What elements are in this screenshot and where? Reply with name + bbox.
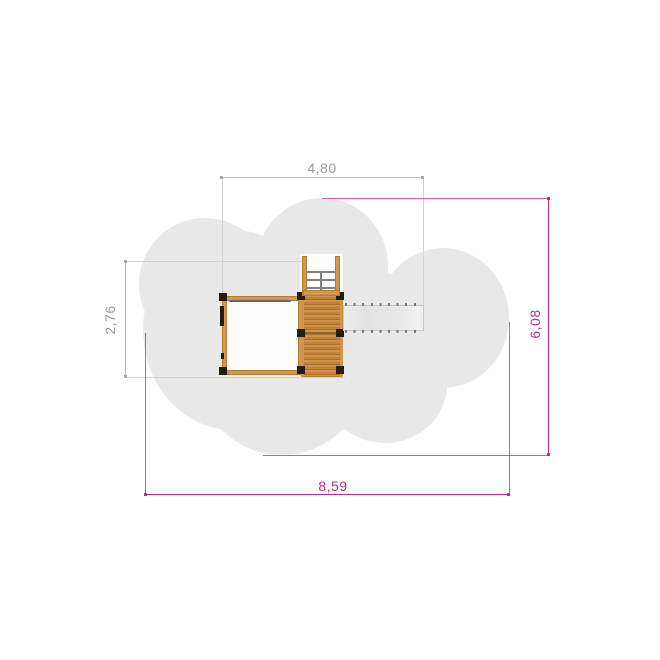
dimension-line-left <box>125 261 126 377</box>
platform-post-mid-left <box>297 329 305 337</box>
slide <box>343 305 424 331</box>
ext-line-bottom-left <box>145 333 146 494</box>
dim-end-left-top <box>124 260 127 263</box>
drawing-canvas: 4,80 2,76 6,08 8,59 <box>0 0 660 660</box>
dim-end-bottom-right <box>507 493 510 496</box>
ladder-center-picket <box>320 271 322 292</box>
frame-interior <box>227 300 299 370</box>
frame-post-top-left <box>219 293 227 301</box>
frame-beam-bottom <box>222 370 304 375</box>
dim-end-right-bottom <box>547 453 550 456</box>
frame-post-bottom-left <box>219 367 227 375</box>
dimension-label-equipment-depth: 2,76 <box>102 290 118 350</box>
ext-line-bottom-right <box>509 322 510 494</box>
ext-line-right-lower <box>263 455 548 456</box>
ext-line-left-lower <box>127 377 345 378</box>
dim-end-right-top <box>547 197 550 200</box>
dim-end-top-right <box>421 176 424 179</box>
slide-bolts-top <box>345 303 422 306</box>
platform-post-bottom-right <box>336 366 344 374</box>
dimension-line-bottom <box>145 494 509 495</box>
dimension-label-safety-zone-depth: 6,08 <box>527 294 543 354</box>
dimension-line-right <box>548 198 549 455</box>
ext-line-left-upper <box>127 261 303 262</box>
frame-crossbar <box>229 300 291 302</box>
platform-post-bottom-left <box>297 366 305 374</box>
frame-wall-attachment-small <box>221 353 224 359</box>
ladder-base-bar <box>303 290 340 296</box>
ext-line-top-left <box>222 179 223 295</box>
dimension-label-equipment-width: 4,80 <box>292 160 352 176</box>
dimension-line-top <box>222 177 423 178</box>
ext-line-right-upper <box>322 198 548 199</box>
frame-wall-attachment <box>220 306 224 326</box>
dim-end-top-left <box>220 176 223 179</box>
dimension-label-safety-zone-width: 8,59 <box>303 478 363 494</box>
dim-end-bottom-left <box>144 493 147 496</box>
slide-bolts-bottom <box>345 330 422 333</box>
dim-end-left-bottom <box>124 375 127 378</box>
